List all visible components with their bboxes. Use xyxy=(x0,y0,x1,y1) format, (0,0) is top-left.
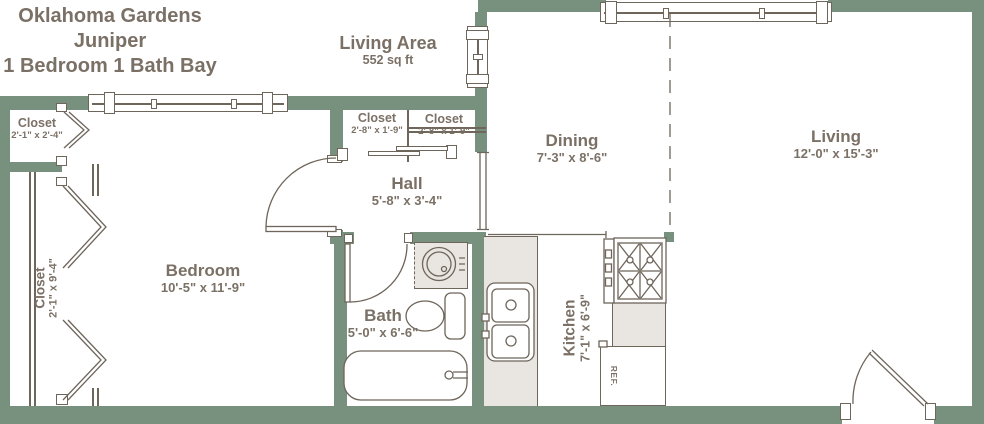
label-refrigerator: REF. xyxy=(609,366,619,386)
hall-dining-opening xyxy=(477,153,489,230)
closet-bifold-door-upper xyxy=(63,186,106,268)
label-closet-hall-right: Closet 2'-8" x 1'-9" xyxy=(418,113,470,137)
label-hall: Hall 5'-8" x 3'-4" xyxy=(372,174,443,208)
plan-title: Oklahoma Gardens Juniper 1 Bedroom 1 Bat… xyxy=(3,4,216,79)
kitchen-sink xyxy=(482,283,534,361)
closet-bifold-door-lower xyxy=(63,320,106,400)
plan-title-line3: 1 Bedroom 1 Bath Bay xyxy=(3,54,216,79)
bath-door xyxy=(345,244,407,302)
label-bedroom: Bedroom 10'-5" x 11'-9" xyxy=(161,261,245,295)
entry-door xyxy=(853,350,928,406)
label-dining: Dining 7'-3" x 8'-6" xyxy=(537,131,608,165)
label-bath: Bath 5'-0" x 6'-6" xyxy=(348,306,419,340)
living-area-note: Living Area 552 sq ft xyxy=(339,33,436,67)
living-area-value: 552 sq ft xyxy=(339,53,436,67)
label-kitchen: Kitchen 7'-1" x 6'-9" xyxy=(562,294,593,362)
label-closet-hall-left: Closet 2'-8" x 1'-9" xyxy=(351,112,403,136)
label-living: Living 12'-0" x 15'-3" xyxy=(793,127,878,161)
floor-plan: Oklahoma Gardens Juniper 1 Bedroom 1 Bat… xyxy=(0,0,984,424)
plan-title-line1: Oklahoma Gardens xyxy=(3,4,216,29)
kitchen-soffit-line xyxy=(488,231,606,238)
vanity-sink xyxy=(423,248,466,281)
living-area-label: Living Area xyxy=(339,33,436,53)
stove xyxy=(604,238,666,303)
bathtub xyxy=(344,351,468,400)
bedroom-door xyxy=(266,158,336,232)
label-closet-entry: Closet 2'-1" x 2'-4" xyxy=(11,117,63,141)
label-closet-bedroom: Closet 2'-1" x 9'-4" xyxy=(33,258,60,318)
closet-entry-bifold-door xyxy=(64,112,89,148)
plan-title-line2: Juniper xyxy=(3,29,216,54)
refrigerator-door-tick xyxy=(599,341,607,347)
